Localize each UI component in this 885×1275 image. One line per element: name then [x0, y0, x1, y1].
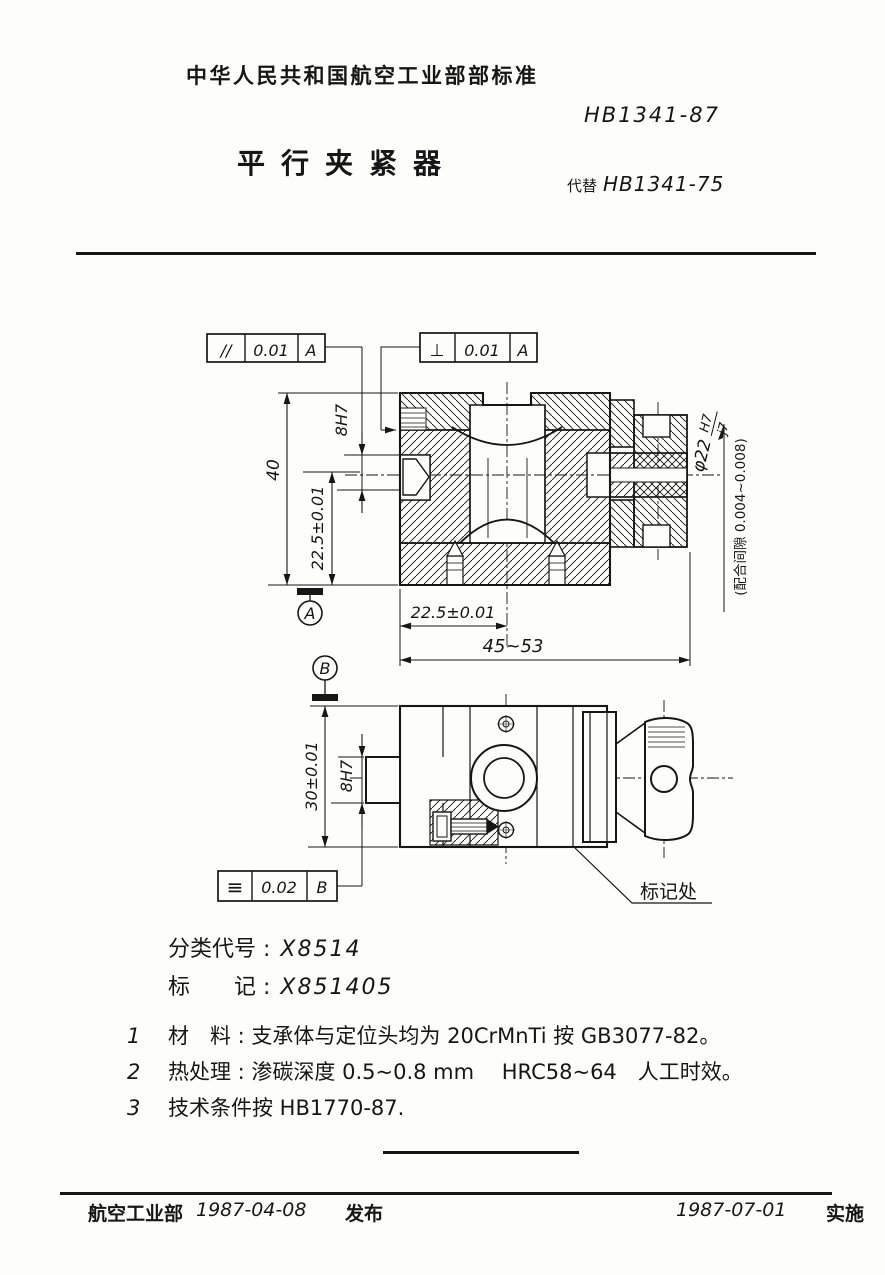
- fit-diameter: φ22: [688, 437, 715, 474]
- center-bore: [484, 758, 524, 798]
- dim-8h7-top: 8H7: [332, 403, 351, 436]
- parallelism-datum: A: [305, 341, 317, 360]
- marking-location-label: 标记处: [640, 881, 697, 903]
- footer-issuer: 航空工业部: [88, 1199, 183, 1226]
- footer-implementation-date: 1987-07-01: [676, 1199, 786, 1221]
- parallelism-value: 0.01: [253, 341, 289, 360]
- flange-plate: [583, 712, 616, 842]
- datum-a: A: [297, 588, 323, 625]
- datum-b-label: B: [320, 659, 331, 678]
- top-section-view: [345, 382, 720, 648]
- ball-end: [460, 520, 554, 544]
- perpendicularity-symbol: ⊥: [430, 341, 445, 361]
- notes-end-divider: [383, 1151, 579, 1154]
- dim-40: 40: [264, 459, 284, 481]
- symmetry-datum: B: [317, 878, 328, 897]
- technical-drawing: // 0.01 A ⊥ 0.01 A ≡ 0.02 B: [0, 0, 885, 960]
- dim-22-5-vertical: 22.5±0.01: [308, 486, 327, 571]
- classification-mark-label: 标 记 :: [168, 975, 270, 1000]
- dim-45-53: 45~53: [483, 636, 544, 657]
- standard-document-page: 中华人民共和国航空工业部部标准 HB1341-87 平行夹紧器 代替HB1341…: [0, 0, 885, 1275]
- dim-22-5-horizontal: 22.5±0.01: [411, 603, 496, 622]
- parallelism-fcf: // 0.01 A: [207, 334, 362, 362]
- handle-bottom-notch: [643, 525, 670, 547]
- datum-b: B: [312, 656, 338, 701]
- fit-clearance-note: (配合间隙 0.004~0.008): [733, 438, 749, 595]
- fit-shaft-tolerance: j7: [715, 420, 733, 438]
- footer-divider: [60, 1192, 832, 1195]
- classification-code-value: X8514: [280, 937, 361, 962]
- tommy-bar-hole: [651, 766, 677, 792]
- classification-code-label: 分类代号 :: [168, 937, 270, 962]
- footer-implementation-label: 实施: [826, 1199, 864, 1226]
- symmetry-symbol: ≡: [227, 875, 244, 899]
- classification-mark-row: 标 记 :X851405: [168, 969, 393, 1007]
- note-number: 1: [127, 1018, 168, 1054]
- note-row: 2 热处理 : 渗碳深度 0.5~0.8 mm HRC58~64 人工时效。: [127, 1054, 743, 1090]
- note-number: 3: [127, 1090, 168, 1126]
- perpendicularity-datum: A: [517, 341, 529, 360]
- symmetry-value: 0.02: [261, 878, 297, 897]
- note-text: 材 料 : 支承体与定位头均为 20CrMnTi 按 GB3077-82。: [168, 1018, 720, 1054]
- footer-release-label: 发布: [345, 1199, 383, 1226]
- dim-30: 30±0.01: [302, 741, 321, 810]
- handle-top-notch: [643, 415, 670, 437]
- note-number: 2: [127, 1054, 168, 1090]
- classification-mark-value: X851405: [280, 975, 393, 1000]
- datum-a-label: A: [304, 604, 316, 623]
- symmetry-fcf: ≡ 0.02 B: [218, 803, 362, 901]
- parallelism-symbol: //: [219, 341, 233, 360]
- locating-tab: [366, 757, 400, 803]
- note-text: 技术条件按 HB1770-87.: [168, 1090, 404, 1126]
- footer-release-date: 1987-04-08: [196, 1199, 306, 1221]
- fit-hole-tolerance: H7: [697, 412, 716, 434]
- dim-8h7-bottom: 8H7: [337, 759, 356, 792]
- perpendicularity-value: 0.01: [464, 341, 500, 360]
- note-text: 热处理 : 渗碳深度 0.5~0.8 mm HRC58~64 人工时效。: [168, 1054, 743, 1090]
- notes-list: 1 材 料 : 支承体与定位头均为 20CrMnTi 按 GB3077-82。 …: [127, 1018, 743, 1126]
- classification-code-row: 分类代号 :X8514: [168, 931, 393, 969]
- bottom-plan-view: 标记处: [350, 694, 733, 903]
- fit-callout: φ22 H7 j7 (配合间隙 0.004~0.008): [687, 408, 749, 612]
- note-row: 3 技术条件按 HB1770-87.: [127, 1090, 743, 1126]
- note-row: 1 材 料 : 支承体与定位头均为 20CrMnTi 按 GB3077-82。: [127, 1018, 743, 1054]
- classification-block: 分类代号 :X8514 标 记 :X851405: [168, 931, 393, 1007]
